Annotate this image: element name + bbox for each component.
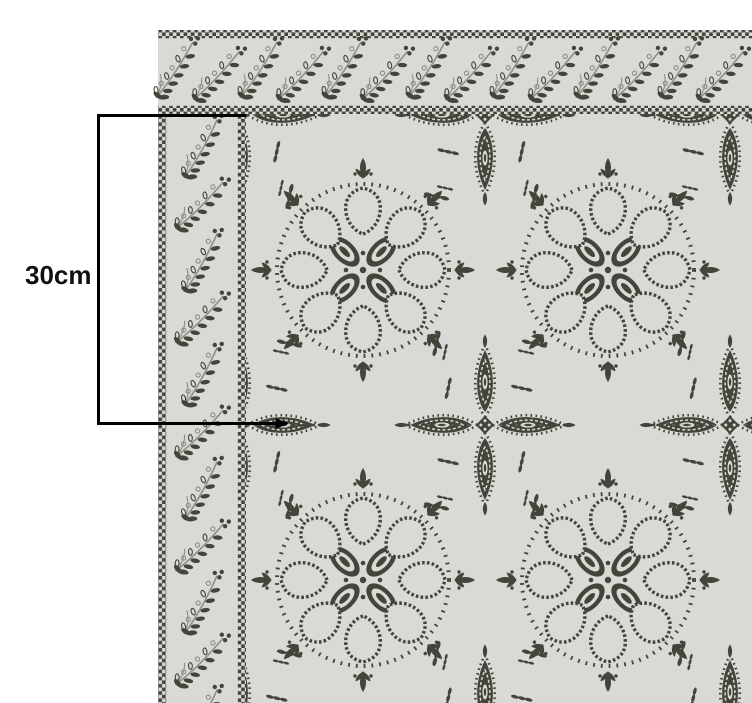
fabric-swatch <box>0 0 752 703</box>
measurement-label: 30cm <box>25 260 92 291</box>
fabric-background <box>158 30 752 703</box>
measurement-diagram: 30cm <box>0 0 752 703</box>
